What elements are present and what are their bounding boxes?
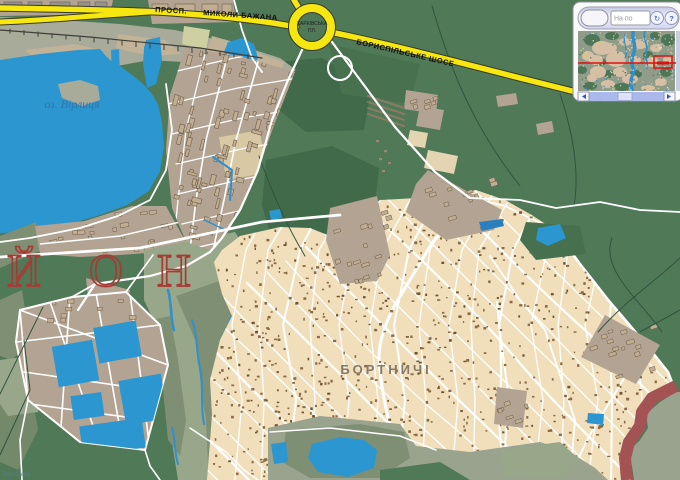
svg-text:Теребівка: Теребівка: [2, 470, 31, 478]
svg-text:↻: ↻: [654, 14, 660, 23]
svg-text:?: ?: [669, 14, 674, 23]
svg-text:О: О: [89, 245, 123, 297]
svg-text:оз. Вірлиця: оз. Вірлиця: [44, 97, 100, 111]
svg-text:ПРОСП.: ПРОСП.: [155, 5, 187, 16]
svg-text:ХАРКІВСЬКА: ХАРКІВСЬКА: [297, 21, 328, 27]
svg-text:БОРТНИЧІ: БОРТНИЧІ: [340, 362, 431, 377]
svg-text:На по: На по: [614, 16, 633, 23]
svg-text:Н: Н: [157, 245, 191, 297]
svg-text:Й: Й: [7, 245, 41, 297]
svg-text:ПЛ.: ПЛ.: [308, 28, 316, 34]
